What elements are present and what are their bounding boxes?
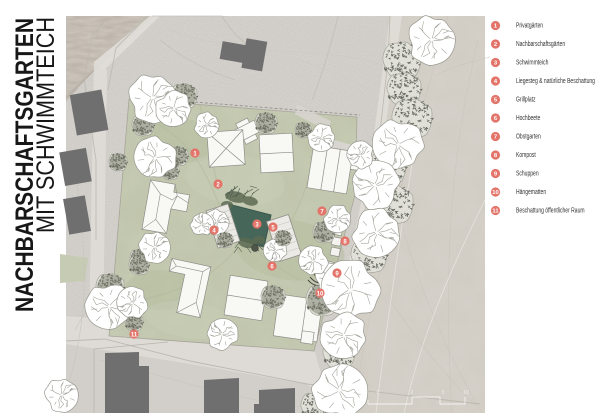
svg-text:Nachbarschaftsgärten: Nachbarschaftsgärten xyxy=(516,40,565,48)
svg-text:11: 11 xyxy=(492,209,499,215)
svg-text:Grillplatz: Grillplatz xyxy=(516,96,536,104)
svg-text:Obstgarten: Obstgarten xyxy=(516,133,541,141)
svg-text:10: 10 xyxy=(492,190,498,196)
svg-text:10: 10 xyxy=(463,390,469,396)
svg-text:5: 5 xyxy=(442,390,445,396)
svg-text:Hängematten: Hängematten xyxy=(516,188,547,196)
svg-text:2: 2 xyxy=(411,390,414,396)
svg-text:0: 0 xyxy=(377,390,380,396)
svg-text:Kompost: Kompost xyxy=(516,151,536,159)
svg-text:11: 11 xyxy=(131,333,138,339)
svg-text:Liegesteg & natürliche Beschat: Liegesteg & natürliche Beschattung xyxy=(516,77,595,85)
svg-text:7: 7 xyxy=(494,135,497,141)
svg-text:Hochbeete: Hochbeete xyxy=(516,114,541,122)
svg-text:Beschattung öffentlicher Raum: Beschattung öffentlicher Raum xyxy=(516,207,585,215)
svg-text:Schwimmteich: Schwimmteich xyxy=(516,59,549,67)
svg-text:2: 2 xyxy=(494,42,497,48)
svg-text:MIT SCHWIMMTEICH: MIT SCHWIMMTEICH xyxy=(32,17,60,233)
svg-text:Privatgärten: Privatgärten xyxy=(516,22,543,30)
svg-text:10: 10 xyxy=(317,292,324,298)
svg-text:Schuppen: Schuppen xyxy=(516,170,539,178)
